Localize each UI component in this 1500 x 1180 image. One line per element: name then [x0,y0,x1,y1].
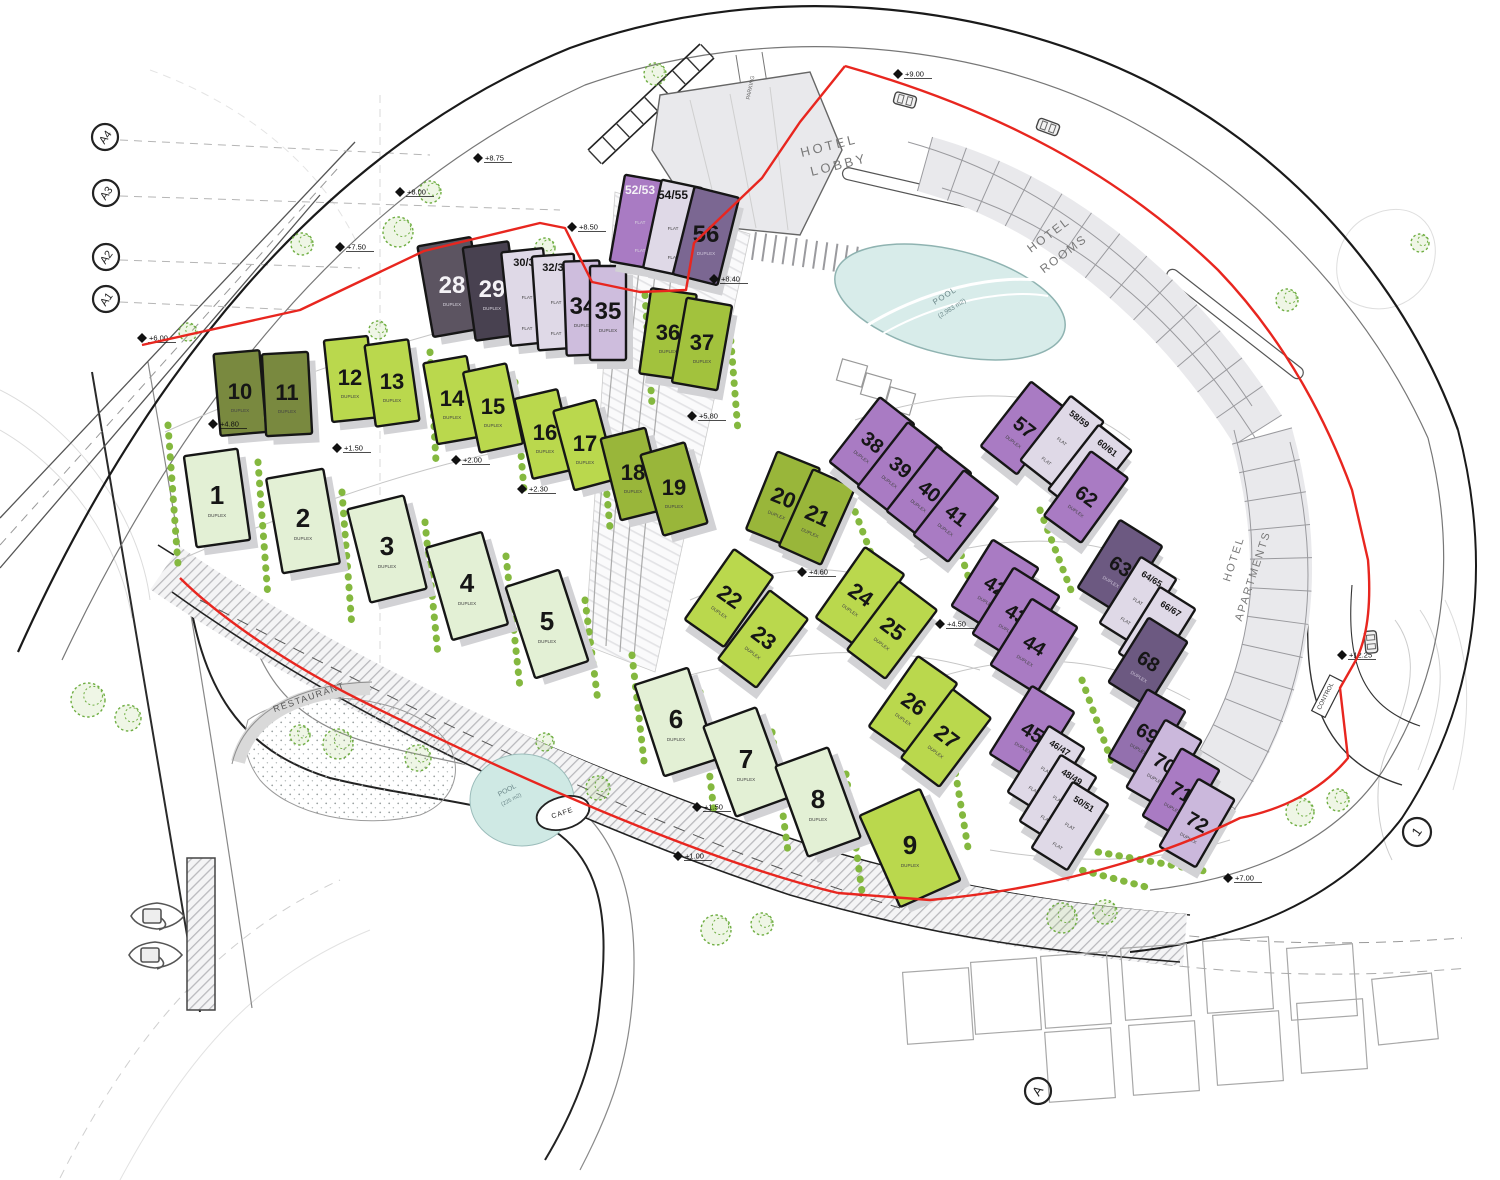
elevation-value: +8.75 [485,154,504,163]
building-2[interactable]: 2DUPLEX [266,467,348,582]
car-icon [1036,118,1061,137]
elevation-diamond-icon [567,222,577,232]
pier [187,858,215,1010]
plot-number: 8 [811,784,825,814]
plot-number: 18 [621,460,645,485]
boats [129,903,184,969]
ref-circle-A: A [1025,1078,1051,1104]
tick-line [631,111,643,124]
tick-line [673,71,685,84]
plot-number: 4 [460,568,475,598]
elevation-value: +8.40 [721,275,740,284]
plot-number: 36 [656,320,680,345]
elevation-value: +4.50 [947,620,966,629]
tree-icon [383,217,413,247]
unit-type-label: FLAT [668,226,679,231]
tick-line [793,238,797,266]
tick-line [603,137,615,150]
tick-line [645,97,657,110]
tick-line [617,124,629,137]
tick-line [813,241,817,269]
tree-icon [751,913,773,935]
plot-number: 1 [210,480,224,510]
elevation-diamond-icon [137,333,147,343]
elevation-value: +2.00 [463,456,482,465]
tick-line [772,235,776,263]
plot-number: 29 [479,276,506,303]
plot-number: 19 [662,475,686,500]
ref-circle-label: 1 [1408,824,1424,839]
tree-icon [644,63,666,85]
unit-type-label: DUPLEX [599,328,617,333]
elevation-diamond-icon [1337,650,1347,660]
tree-icon [291,233,313,255]
elevation-value: +1.00 [685,852,704,861]
elevation-value: +1.50 [344,444,363,453]
tree-icon [1411,234,1429,252]
boat-icon [129,942,182,969]
unit-type-label: DUPLEX [383,398,401,403]
tick-line [803,239,807,267]
unit-type-label: DUPLEX [443,302,461,307]
boat-icon [131,903,184,930]
plot-number: 52/53 [625,183,655,197]
unit-type-label: DUPLEX [624,489,642,494]
tree-icon [115,705,141,731]
unit-type-label: DUPLEX [278,409,296,414]
elevation-diamond-icon [395,187,405,197]
elevation-value: +8.50 [579,223,598,232]
elevation-diamond-icon [451,455,461,465]
plot-number: 7 [739,744,753,774]
unit-type-label: FLAT [551,331,562,336]
tree-icon [71,683,105,717]
tick-line [752,232,756,260]
ref-circle-label: A [1029,1083,1046,1099]
elevation-marker: +2.00 [451,455,490,465]
elevation-value: +8.00 [407,188,426,197]
grid-ref-A4: A4 [92,124,118,150]
tree-icon [369,321,387,339]
elevation-value: +4.80 [220,420,239,429]
unit-type-label: DUPLEX [538,639,556,644]
elevation-diamond-icon [797,567,807,577]
elevation-marker: +9.00 [893,69,932,79]
tree-icon [586,776,610,800]
elevation-value: +7.50 [347,243,366,252]
plot-number: 11 [275,380,298,405]
tree-icon [290,725,310,745]
unit-type-label: DUPLEX [483,306,501,311]
building-35[interactable]: 35DUPLEX [590,266,633,369]
unit-type-label: DUPLEX [536,449,554,454]
unit-type-label: DUPLEX [378,564,396,569]
elevation-marker: +8.75 [473,153,512,163]
tree-icon [323,729,353,759]
elevation-marker: +8.40 [709,274,748,284]
plot-number: 3 [380,531,394,561]
elevation-value: +9.00 [905,70,924,79]
elevation-value: +7.00 [1235,874,1254,883]
building-11[interactable]: 11DUPLEX [262,351,320,445]
hedge [168,425,178,565]
car-icon [1364,631,1378,654]
elevation-marker: +2.30 [517,484,556,494]
plot-number: 15 [481,394,505,419]
tree-icon [536,733,554,751]
hotel-apartments-band [1184,428,1312,810]
unit-type-label: FLAT [551,300,562,305]
tick-line [762,234,766,262]
elevation-marker: +7.00 [1223,873,1262,883]
elevation-diamond-icon [332,443,342,453]
tick-line [783,237,787,265]
elevation-marker: +7.50 [335,242,374,252]
site-plan-canvas: 1DUPLEX2DUPLEX3DUPLEX4DUPLEX5DUPLEX6DUPL… [0,0,1500,1180]
plot-number: 54/55 [658,188,688,202]
elevation-marker: +1.50 [332,443,371,453]
elevation-marker: +1.50 [692,802,731,812]
unit-type-label: FLAT [522,326,533,331]
tree-icon [1276,289,1298,311]
grid-ref-A2: A2 [93,244,119,270]
plot-number: 13 [380,369,404,394]
plot-number: 12 [338,365,362,390]
tick-line [833,244,837,272]
unit-type-label: FLAT [635,220,646,225]
plot-number: 9 [903,830,917,860]
unit-type-label: DUPLEX [458,601,476,606]
building-1[interactable]: 1DUPLEX [184,448,258,557]
elevation-diamond-icon [208,419,218,429]
unit-type-label: DUPLEX [665,504,683,509]
unit-type-label: DUPLEX [901,863,919,868]
plot-number: 2 [296,503,310,533]
ref-circle-1: 1 [1403,818,1431,846]
grid-ref-A1: A1 [93,286,119,312]
tree-icon [1047,903,1077,933]
plot-number: 14 [440,386,465,411]
elevation-diamond-icon [893,69,903,79]
tree-icon [1327,789,1349,811]
unit-type-label: DUPLEX [576,460,594,465]
building-4[interactable]: 4DUPLEX [426,530,517,649]
unit-type-label: DUPLEX [208,513,226,518]
unit-type-label: DUPLEX [294,536,312,541]
unit-type-label: DUPLEX [809,817,827,822]
tree-icon [1093,900,1117,924]
elevation-value: +5.80 [699,412,718,421]
unit-type-label: DUPLEX [667,737,685,742]
plot-number: 16 [533,420,557,445]
building-13[interactable]: 13DUPLEX [365,338,428,435]
elevation-value: +1.50 [704,803,723,812]
elevation-value: +2.30 [529,485,548,494]
tree-icon [179,323,197,341]
elevation-marker: +4.60 [797,567,836,577]
unit-type-label: FLAT [635,248,646,253]
plot-number: 56 [693,221,720,248]
unit-type-label: DUPLEX [697,251,715,256]
elevation-marker: +8.50 [567,222,606,232]
plot-number: 5 [540,606,554,636]
unit-type-label: FLAT [522,295,533,300]
tick-line [589,150,601,163]
plot-number: 6 [669,704,683,734]
tree-icon [405,745,431,771]
tick-line [687,58,699,71]
unit-type-label: DUPLEX [484,423,502,428]
tick-line [823,242,827,270]
elevation-diamond-icon [935,619,945,629]
elevation-diamond-icon [473,153,483,163]
plot-number: 37 [690,330,714,355]
car-icon [893,91,917,108]
unit-type-label: DUPLEX [693,359,711,364]
plot-number: 10 [228,379,252,404]
elevation-value: +4.60 [809,568,828,577]
plot-number: 35 [595,298,622,325]
grid-ref-A3: A3 [93,180,119,206]
site-plan: 1DUPLEX2DUPLEX3DUPLEX4DUPLEX5DUPLEX6DUPL… [0,0,1500,1180]
elevation-marker: +5.80 [687,411,726,421]
unit-type-label: DUPLEX [231,408,249,413]
label-hotel: HOTEL [1221,535,1247,583]
unit-type-label: DUPLEX [659,349,677,354]
unit-type-label: DUPLEX [737,777,755,782]
building-3[interactable]: 3DUPLEX [347,494,435,612]
plot-number: 28 [439,272,466,299]
unit-type-label: DUPLEX [443,415,461,420]
unit-type-label: DUPLEX [341,394,359,399]
plot-number: 17 [573,431,597,456]
tree-icon [701,915,731,945]
